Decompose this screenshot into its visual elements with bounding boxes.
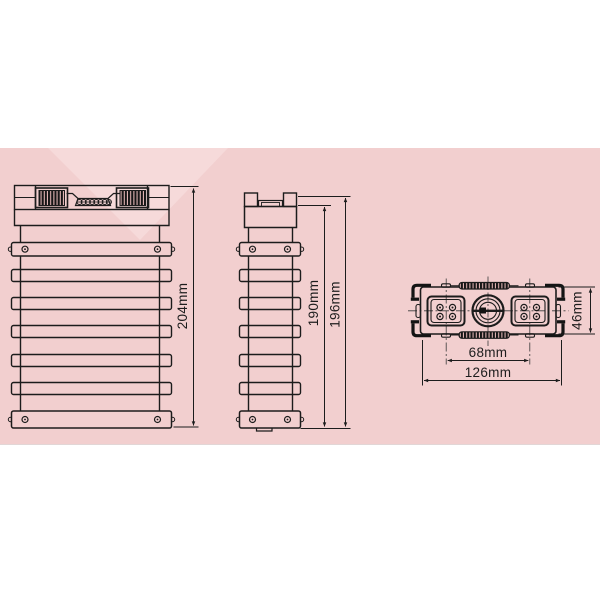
front-terminal-positive-hatch (120, 191, 146, 206)
pink-panel (0, 148, 600, 444)
front-upper-plate (8, 243, 174, 257)
top-depth-label: 46mm (570, 291, 585, 330)
drawing-canvas: 204mm (0, 0, 600, 600)
side-bottom-plate (236, 411, 303, 431)
front-bottom-plate (8, 411, 174, 428)
front-vent-coil (77, 200, 111, 205)
side-body-height-label: 190mm (306, 280, 321, 327)
front-terminal-negative-hatch (39, 191, 65, 206)
top-terminal-pitch-label: 68mm (469, 345, 508, 360)
side-upper-plate (236, 243, 303, 257)
side-overall-height-label: 196mm (328, 281, 343, 328)
front-height-label: 204mm (175, 283, 190, 330)
technical-drawing-page: 204mm (0, 0, 600, 600)
top-width-label: 126mm (465, 365, 512, 380)
